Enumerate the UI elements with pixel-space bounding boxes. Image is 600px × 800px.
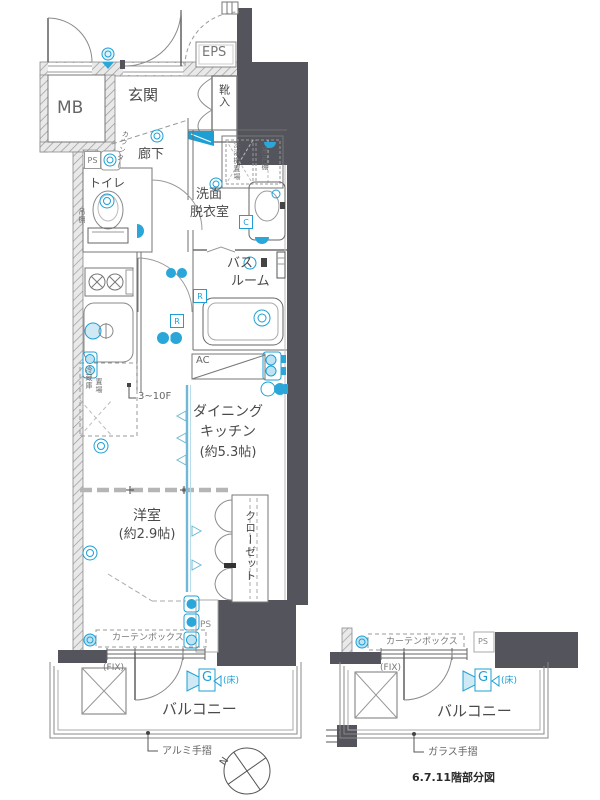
ps-upper-box: PS xyxy=(84,151,101,169)
washing-machine-label: 洗濯機置場 xyxy=(233,141,241,181)
corridor-label: 廊下 xyxy=(138,148,164,163)
bathroom-label-1: バス xyxy=(227,257,253,272)
room-divider xyxy=(80,486,230,494)
handrail-label-main: アルミ手摺 xyxy=(162,746,212,758)
compass xyxy=(224,748,270,794)
ps-lower-label: PS xyxy=(200,620,211,630)
balcony-label-partial: バルコニー xyxy=(437,703,512,720)
gas-floor-label-main: (床) xyxy=(223,676,239,686)
gas-floor-label-partial: (床) xyxy=(501,676,517,686)
shoe-cabinet-label: 靴入 xyxy=(217,84,230,108)
floor-plan-page: MB 玄関 EPS 靴入 廊下 カウンター PS トイレ 吊棚 洗濯機置場 吊戸… xyxy=(0,0,600,800)
remote-badge-2: R xyxy=(170,314,184,328)
ps-label-partial: PS xyxy=(478,637,488,646)
curtain-box-label-main: カーテンボックス xyxy=(112,633,184,643)
toilet-shelf-label: 吊棚 xyxy=(78,208,86,224)
entrance-label: 玄関 xyxy=(128,87,158,104)
fridge-label-1: 冷蔵庫 xyxy=(85,366,93,390)
cold-water-badge: C xyxy=(239,215,253,229)
gas-outlet-label-main: G xyxy=(202,671,212,686)
dining-kitchen-label-1: ダイニング xyxy=(186,402,270,424)
toilet-label: トイレ xyxy=(89,177,125,191)
ac-label: AC xyxy=(196,355,210,367)
floor-range-label: 3~10F xyxy=(138,391,171,403)
fridge-label-2: 置場 xyxy=(95,378,103,394)
washroom-label-1: 洗面 xyxy=(196,188,222,203)
western-room-dashes xyxy=(108,574,186,601)
dining-kitchen-size: (約5.3帖) xyxy=(184,446,272,461)
washroom-label-2: 脱衣室 xyxy=(190,206,229,221)
closet xyxy=(215,495,268,602)
closet-label: クローゼット xyxy=(243,510,256,582)
hanging-cupboard-label: 吊戸棚 xyxy=(261,147,269,171)
kitchen xyxy=(80,268,137,436)
western-room-label: 洋室 xyxy=(98,508,196,524)
fix-label-main: (FIX) xyxy=(103,663,124,673)
western-room-size: (約2.9帖) xyxy=(94,528,200,543)
floor-range-leader xyxy=(127,383,136,398)
bathroom xyxy=(157,252,285,346)
curtain-box-label-partial: カーテンボックス xyxy=(386,637,458,647)
fix-label-partial: (FIX) xyxy=(380,663,401,673)
meter-box-label: MB xyxy=(57,99,83,119)
partial-plan-caption: 6.7.11階部分図 xyxy=(412,772,495,785)
handrail-label-partial: ガラス手摺 xyxy=(428,747,478,759)
dining-kitchen-label-2: キッチン xyxy=(186,424,270,440)
balcony-label-main: バルコニー xyxy=(162,701,237,718)
bathroom-label-2: ルーム xyxy=(231,275,270,290)
remote-badge-1: R xyxy=(193,289,207,303)
gas-outlet-label-partial: G xyxy=(478,671,488,686)
eps-label: EPS xyxy=(202,46,226,61)
pipe-shaft xyxy=(222,2,238,14)
